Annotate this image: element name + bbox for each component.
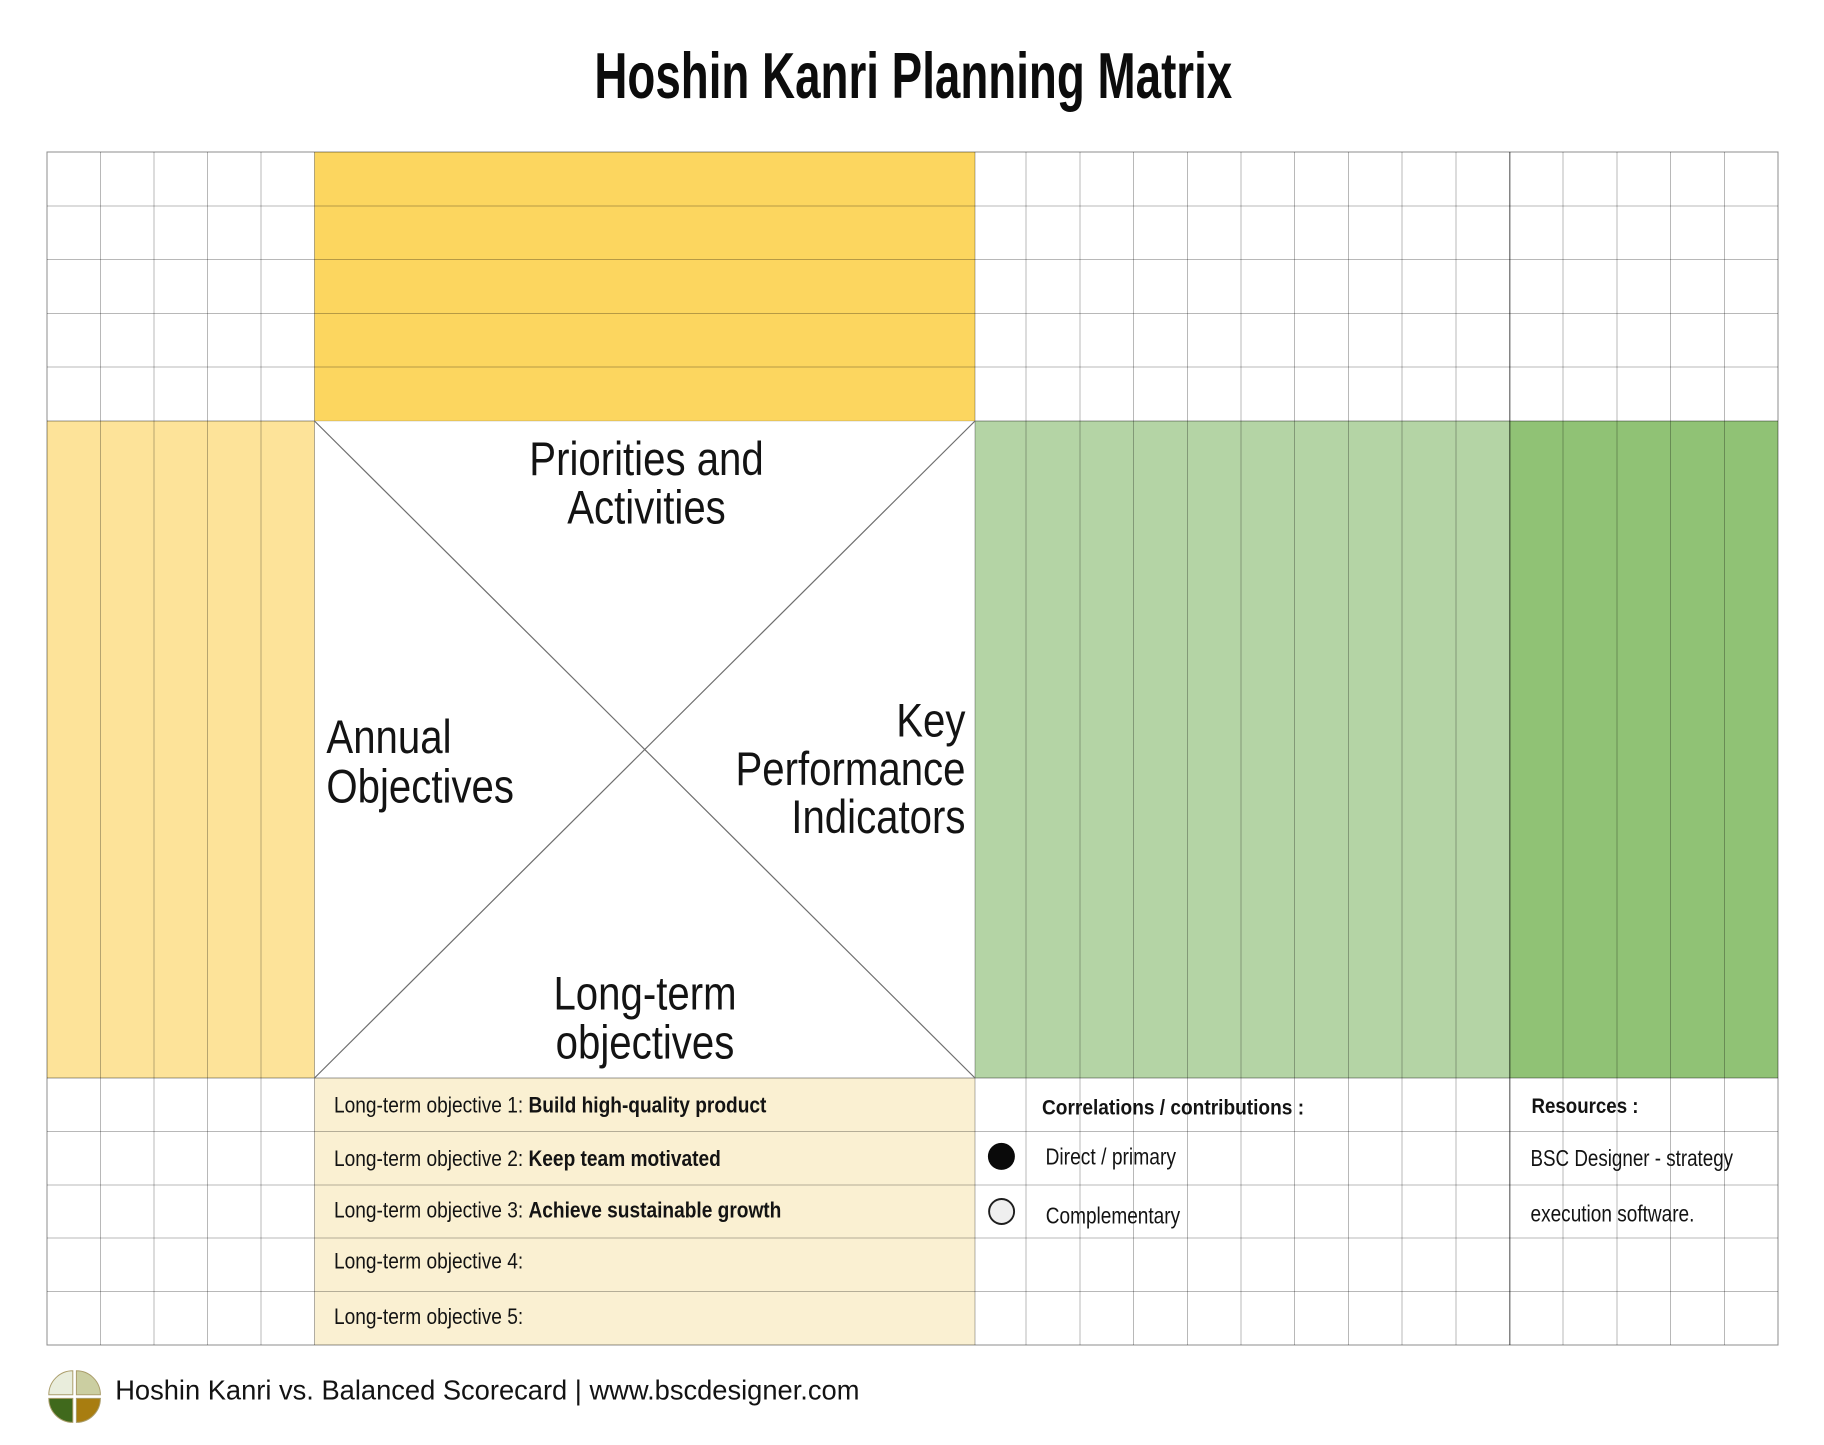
svg-text:execution software.: execution software. — [1531, 1201, 1695, 1227]
svg-text:Long-term objective 1: Build h: Long-term objective 1: Build high-qualit… — [334, 1093, 766, 1118]
svg-text:Resources :: Resources : — [1532, 1095, 1639, 1118]
svg-text:Activities: Activities — [567, 482, 726, 535]
svg-text:Objectives: Objectives — [326, 761, 514, 814]
svg-text:Correlations / contributions :: Correlations / contributions : — [1042, 1097, 1304, 1120]
svg-text:Annual: Annual — [326, 711, 451, 764]
svg-text:Complementary: Complementary — [1046, 1202, 1181, 1228]
svg-text:Priorities and: Priorities and — [529, 433, 763, 486]
svg-text:Key: Key — [896, 695, 965, 748]
svg-text:Hoshin Kanri vs. Balanced Scor: Hoshin Kanri vs. Balanced Scorecard | ww… — [115, 1374, 859, 1405]
svg-text:Long-term objective 3: Achieve: Long-term objective 3: Achieve sustainab… — [334, 1198, 781, 1223]
svg-text:Long-term objective 4:: Long-term objective 4: — [334, 1249, 523, 1274]
svg-text:Performance: Performance — [735, 743, 965, 796]
svg-text:Hoshin Kanri Planning Matrix: Hoshin Kanri Planning Matrix — [594, 39, 1232, 112]
svg-text:BSC Designer - strategy: BSC Designer - strategy — [1531, 1145, 1734, 1172]
svg-text:Long-term objective 5:: Long-term objective 5: — [334, 1305, 523, 1330]
svg-text:Long-term: Long-term — [553, 968, 736, 1021]
svg-text:objectives: objectives — [556, 1016, 735, 1069]
svg-text:Indicators: Indicators — [791, 791, 965, 844]
svg-text:Direct / primary: Direct / primary — [1046, 1144, 1177, 1170]
svg-text:Long-term objective 2: Keep te: Long-term objective 2: Keep team motivat… — [334, 1146, 721, 1171]
